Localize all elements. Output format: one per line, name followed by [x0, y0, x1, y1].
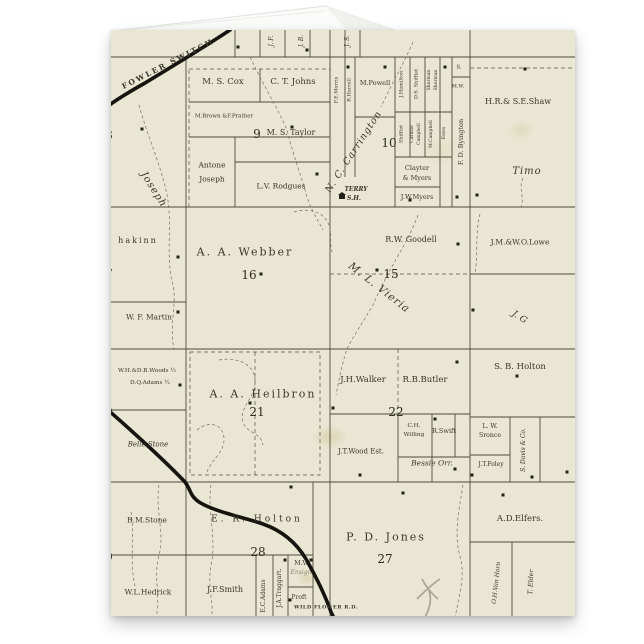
parcel-label-ensign: Ensign [291, 570, 312, 576]
parcel-label-martin: W. F. Martin [126, 313, 172, 321]
parcel-label-belle-stone: Belle Stone [128, 442, 169, 449]
parcel-label-timo: Timo [512, 167, 541, 177]
parcel-label-jw-myers: J.W.Myers [401, 194, 433, 201]
parcel-label-goodell: R.W. Goodell [385, 236, 436, 244]
parcel-label-swift: R.Swift [432, 428, 456, 435]
section-number-20: 0 [111, 406, 113, 418]
section-number-16: 16 [241, 269, 256, 281]
parcel-label-antone-2: Joseph [199, 175, 224, 183]
parcel-label-estes: Estes [443, 127, 448, 139]
parcel-label-smith: J.F.Smith [207, 586, 243, 594]
parcel-label-proft: Proft [291, 595, 306, 601]
school-label-sh: S.H. [347, 196, 361, 202]
section-number-28: 28 [250, 546, 265, 558]
road-grid [111, 30, 575, 616]
parcel-label-traggart: J.A.Traggart. [277, 569, 283, 608]
school-icon [338, 192, 346, 199]
parcel-label-mccampbell: M.Campbell [430, 120, 435, 148]
parcel-label-hedrick: W.L.Hedrick [125, 588, 172, 596]
section-number-9: 9 [253, 128, 261, 140]
parcel-label-s: S. [456, 65, 461, 71]
parcel-label-taylor: M. S. Taylor [267, 129, 316, 137]
parcel-label-clayter-2: & Myers [403, 175, 431, 182]
parcel-label-morris: F.E.Morris [335, 77, 340, 104]
parcel-label-lowe: J.M.&W.O.Lowe [491, 238, 550, 246]
parcel-label-rodgues: L.V. Rodgues [256, 182, 305, 190]
parcel-label-mv: M.V. [294, 561, 307, 567]
parcel-label-cox: M. S. Cox [202, 78, 243, 87]
section-number-29: 9 [111, 551, 113, 563]
parcel-label-woods: W.H.&D.B.Woods ½ [118, 369, 176, 375]
parcel-label-walker: J.H.Walker [340, 376, 386, 385]
parcel-label-campbell: Campbell [418, 123, 423, 145]
parcel-label-heilbron: A. A. Heilbron [209, 389, 316, 400]
parcel-label-webber: A. A. Webber [197, 247, 294, 258]
parcel-label-willing-2: Willing [404, 433, 425, 439]
parcel-label-byington: F. D. Byington [458, 119, 465, 165]
section-number-17: 7 [111, 268, 113, 280]
parcel-label-dq-adams: D.Q.Adams ½ [130, 381, 170, 387]
parcel-label-mw: M.W. [452, 85, 465, 90]
section-number-27: 27 [377, 553, 392, 565]
parcel-label-antone-1: Antone [198, 161, 225, 169]
section-number-10: 10 [381, 137, 396, 149]
parcel-label-sronce-2: Sronce [479, 433, 501, 439]
parcel-label-clayter-1: Clayter [405, 165, 429, 172]
product-photo: FOWLER SWITCH J. F. J. B. J. S. 8 Joseph… [0, 0, 644, 644]
parcel-label-jones: P. D. Jones [346, 532, 426, 543]
parcel-label-brown-prather: M.Brown &F.Prather [195, 114, 253, 120]
parcel-label-johns: C. T. Johns [270, 78, 315, 87]
parcel-label-hamilton: J.Hamilton [400, 71, 405, 98]
parcel-label-er-holton: E. R. Holton [211, 516, 303, 525]
school-label-terry: TERRY [344, 187, 367, 193]
parcel-label-ds-shifflet: D.S. Shifflet [415, 69, 420, 99]
parcel-label-carlisle: Carlisle [411, 125, 416, 143]
card-fold [111, 5, 575, 31]
pencil-x-mark [417, 579, 440, 616]
section-number-15: 15 [383, 268, 398, 280]
parcel-label-sb-holton: S. B. Holton [494, 363, 546, 372]
parcel-label-bm-stone: B.M.Stone [127, 516, 167, 524]
parcel-label-elfers: A.D.Elfers. [497, 515, 543, 524]
road-label-wild-flower: WILD FLOWER R.D. [294, 606, 358, 611]
parcel-label-butler: R.B.Butler [403, 376, 448, 385]
parcel-label-shaw: H.R.& S.E.Shaw [485, 98, 551, 106]
section-number-21: 21 [249, 406, 264, 418]
section-number-8: 8 [111, 129, 113, 141]
parcel-label-shifflet: Shifflet [400, 125, 405, 143]
parcel-label-ec-adams: E.C.Adams [261, 579, 267, 612]
parcel-label-jf: J. F. [269, 36, 275, 47]
parcel-label-elder: T. Elder [527, 569, 535, 595]
parcel-label-sherman-1: Sherman [428, 70, 433, 91]
parcel-label-powell: M.Powell [360, 80, 390, 87]
parcel-label-sherman-2: Sherman [435, 70, 440, 91]
parcel-label-willing-1: C.H. [408, 424, 421, 430]
parcel-label-hakinn: hakinn [118, 237, 158, 245]
parcel-label-jb: J. B. [299, 35, 305, 47]
parcel-label-wood-est: J.T.Wood Est. [338, 449, 384, 456]
plat-map: FOWLER SWITCH J. F. J. B. J. S. 8 Joseph… [111, 30, 575, 616]
parcel-label-js: J. S. [345, 35, 351, 47]
parcel-label-foley: J.T.Foley [478, 462, 503, 468]
parcel-label-bessie-orr: Bessie Orr. [411, 459, 453, 467]
parcel-label-sronce-1: L. W. [482, 424, 497, 430]
parcel-label-harrell: R.Harrell [348, 78, 353, 102]
parcel-label-davis: S. Davis & Co. [521, 428, 527, 472]
section-number-22: 22 [388, 406, 403, 418]
greeting-card: FOWLER SWITCH J. F. J. B. J. S. 8 Joseph… [111, 30, 575, 616]
